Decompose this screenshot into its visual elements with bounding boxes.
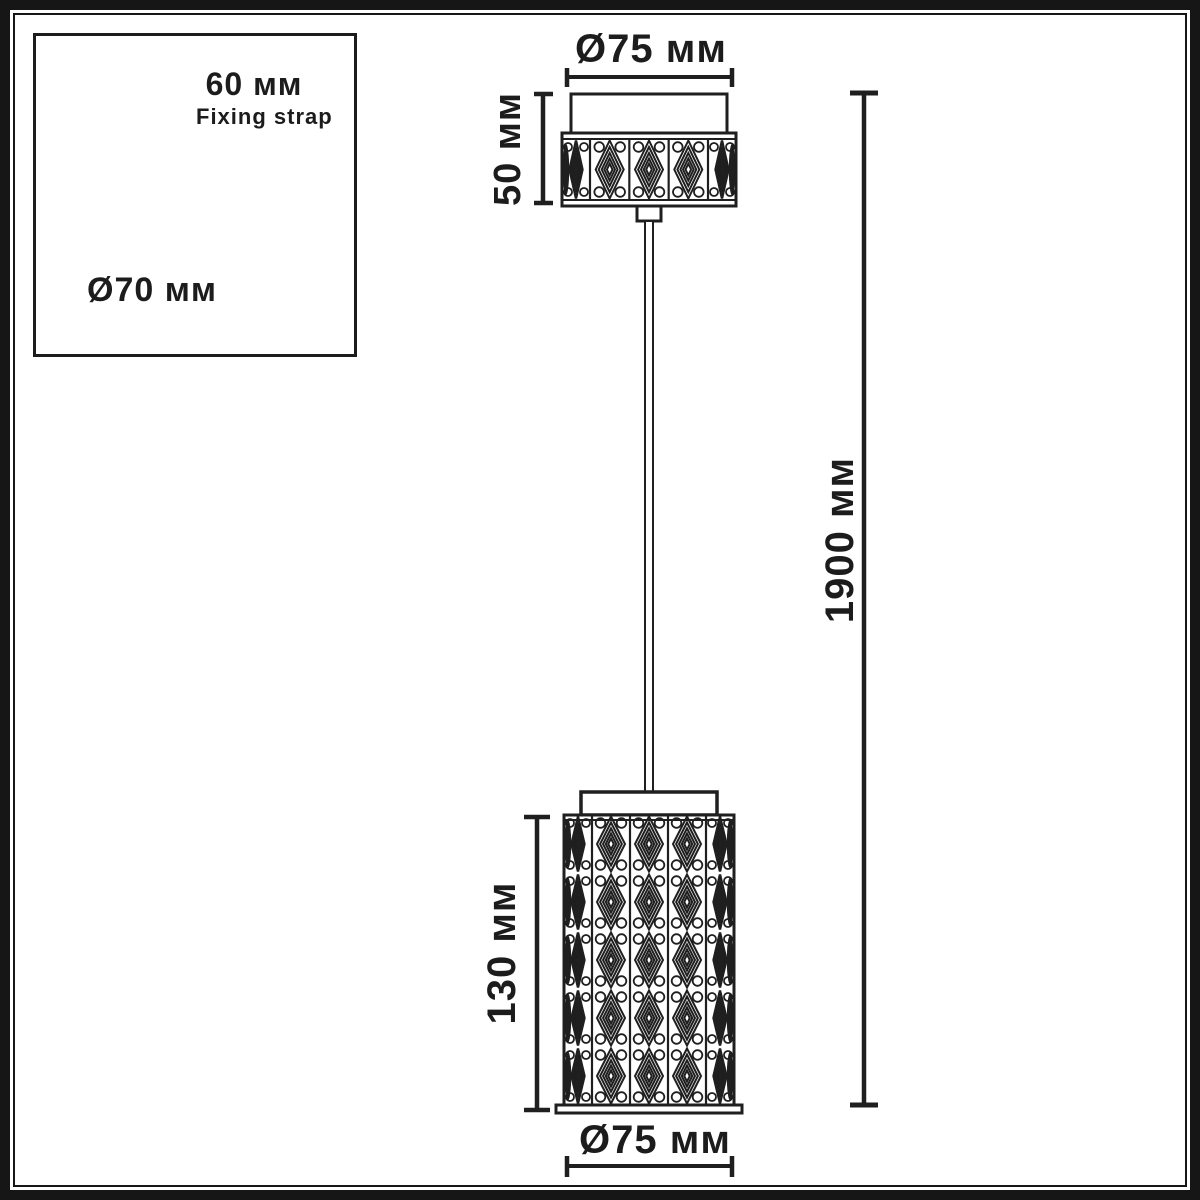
technical-drawing-page: 60 мм Fixing strap Ø70 мм Ø75 мм 50 мм 1… <box>0 0 1200 1200</box>
canopy-height-dimension <box>534 94 553 203</box>
canopy-crystal-band <box>562 133 736 206</box>
base-diameter-label: Ø70 мм <box>87 273 217 307</box>
canopy-cup <box>571 94 727 133</box>
shade-diameter-label: Ø75 мм <box>579 1120 731 1160</box>
cable-connector <box>637 206 661 221</box>
shade-height-dimension <box>524 817 550 1110</box>
canopy-front-view <box>562 94 736 792</box>
shade-height-label: 130 мм <box>482 881 522 1024</box>
shade-top-cap <box>581 792 717 815</box>
canopy-height-label: 50 мм <box>489 92 527 206</box>
canopy-diameter-label: Ø75 мм <box>575 29 727 69</box>
strap-width-label: 60 мм <box>206 68 303 100</box>
fixing-strap-label: Fixing strap <box>196 106 333 128</box>
overall-height-label: 1900 мм <box>820 457 860 623</box>
shade-front-view <box>556 792 742 1113</box>
shade-bottom-rim <box>556 1105 742 1113</box>
suspension-cable <box>645 221 653 792</box>
